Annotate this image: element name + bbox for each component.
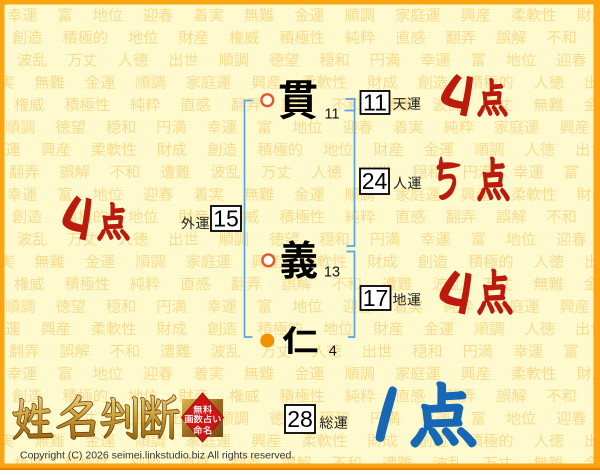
svg-text:11: 11 bbox=[324, 107, 339, 123]
svg-text:24: 24 bbox=[362, 168, 388, 194]
svg-text:13: 13 bbox=[324, 265, 340, 281]
svg-text:28: 28 bbox=[287, 406, 313, 432]
svg-text:15: 15 bbox=[213, 205, 239, 231]
svg-text:4: 4 bbox=[329, 344, 337, 360]
svg-text:Copyright (C) 2026 seimei.link: Copyright (C) 2026 seimei.linkstudio.biz… bbox=[20, 450, 294, 462]
svg-text:11: 11 bbox=[363, 89, 387, 115]
svg-text:17: 17 bbox=[363, 285, 389, 311]
